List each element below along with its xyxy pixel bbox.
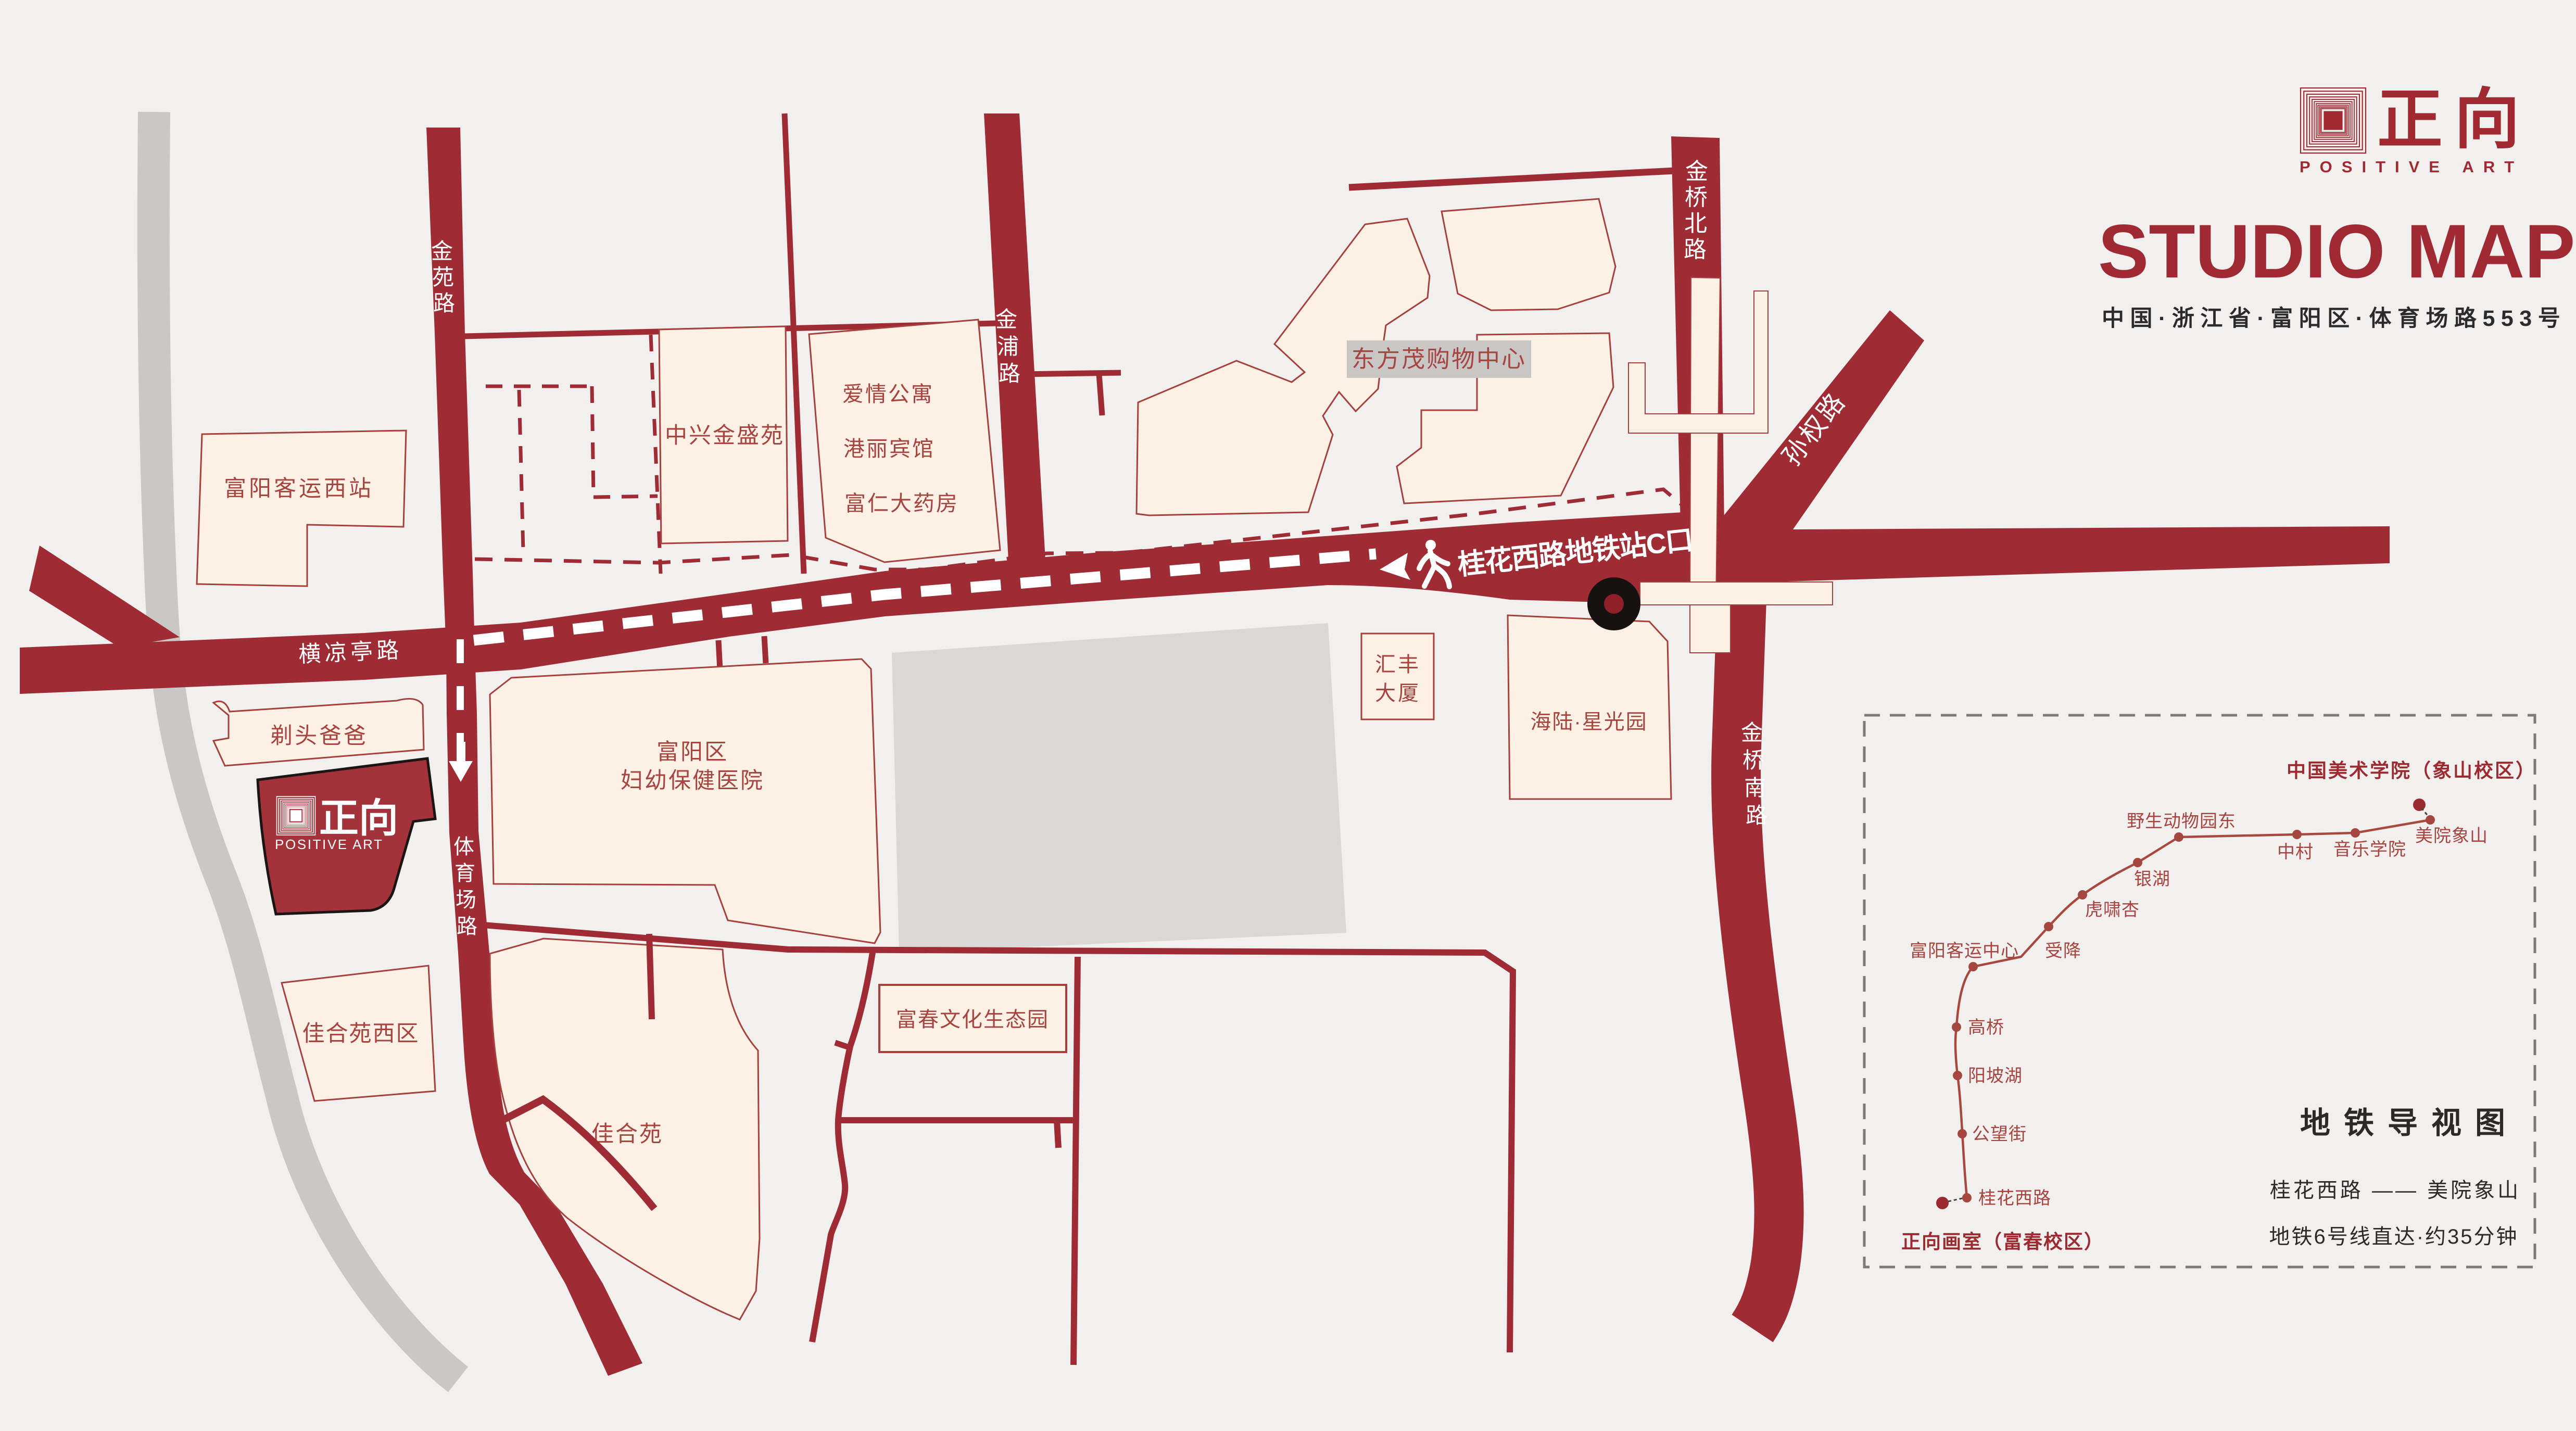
svg-text:金苑路: 金苑路 [431,239,455,315]
svg-text:高桥: 高桥 [1968,1018,2004,1037]
svg-text:中村: 中村 [2277,842,2314,862]
svg-text:银湖: 银湖 [2134,869,2170,889]
svg-text:中国美术学院（象山校区）: 中国美术学院（象山校区） [2287,759,2536,781]
svg-text:中国·浙江省·富阳区·体育场路553号: 中国·浙江省·富阳区·体育场路553号 [2102,306,2566,331]
svg-text:大厦: 大厦 [1375,682,1421,705]
svg-text:正向画室（富春校区）: 正向画室（富春校区） [1901,1231,2104,1252]
svg-text:地铁导视图: 地铁导视图 [2300,1106,2519,1140]
svg-text:桂花西路: 桂花西路 [1978,1188,2051,1208]
svg-text:金浦路: 金浦路 [995,307,1020,386]
svg-text:虎啸杏: 虎啸杏 [2085,900,2140,920]
svg-text:金桥北路: 金桥北路 [1684,159,1708,262]
svg-text:海陆·星光园: 海陆·星光园 [1530,711,1647,733]
svg-text:佳合苑: 佳合苑 [591,1122,663,1147]
svg-text:POSITIVE ART: POSITIVE ART [2300,158,2523,176]
svg-text:富阳客运中心: 富阳客运中心 [1910,941,2019,961]
svg-text:汇丰: 汇丰 [1375,653,1421,676]
svg-text:妇幼保健医院: 妇幼保健医院 [621,768,764,793]
svg-text:横凉亭路: 横凉亭路 [298,638,403,667]
svg-text:佳合苑西区: 佳合苑西区 [302,1021,420,1046]
svg-text:地铁6号线直达·约35分钟: 地铁6号线直达·约35分钟 [2269,1225,2518,1248]
svg-text:富阳区: 富阳区 [656,740,728,765]
svg-text:富仁大药房: 富仁大药房 [844,491,959,515]
svg-text:公望街: 公望街 [1972,1124,2027,1144]
svg-text:音乐学院: 音乐学院 [2333,840,2406,859]
svg-text:富阳客运西站: 富阳客运西站 [224,476,374,501]
svg-text:富春文化生态园: 富春文化生态园 [896,1008,1049,1031]
svg-text:港丽宾馆: 港丽宾馆 [843,437,935,461]
svg-text:东方茂购物中心: 东方茂购物中心 [1352,346,1526,372]
svg-text:桂花西路 —— 美院象山: 桂花西路 —— 美院象山 [2270,1179,2521,1202]
svg-text:正向: 正向 [319,796,398,841]
svg-text:中兴金盛苑: 中兴金盛苑 [665,423,785,448]
svg-text:正向: 正向 [2377,83,2531,156]
svg-text:阳坡湖: 阳坡湖 [1968,1066,2023,1086]
svg-text:剃头爸爸: 剃头爸爸 [270,724,368,749]
svg-text:受降: 受降 [2045,941,2081,961]
svg-text:POSITIVE ART: POSITIVE ART [275,837,383,852]
svg-text:爱情公寓: 爱情公寓 [842,382,934,406]
svg-text:野生动物园东: 野生动物园东 [2127,812,2236,831]
svg-text:美院象山: 美院象山 [2415,826,2488,846]
svg-text:STUDIO MAP: STUDIO MAP [2098,209,2575,294]
